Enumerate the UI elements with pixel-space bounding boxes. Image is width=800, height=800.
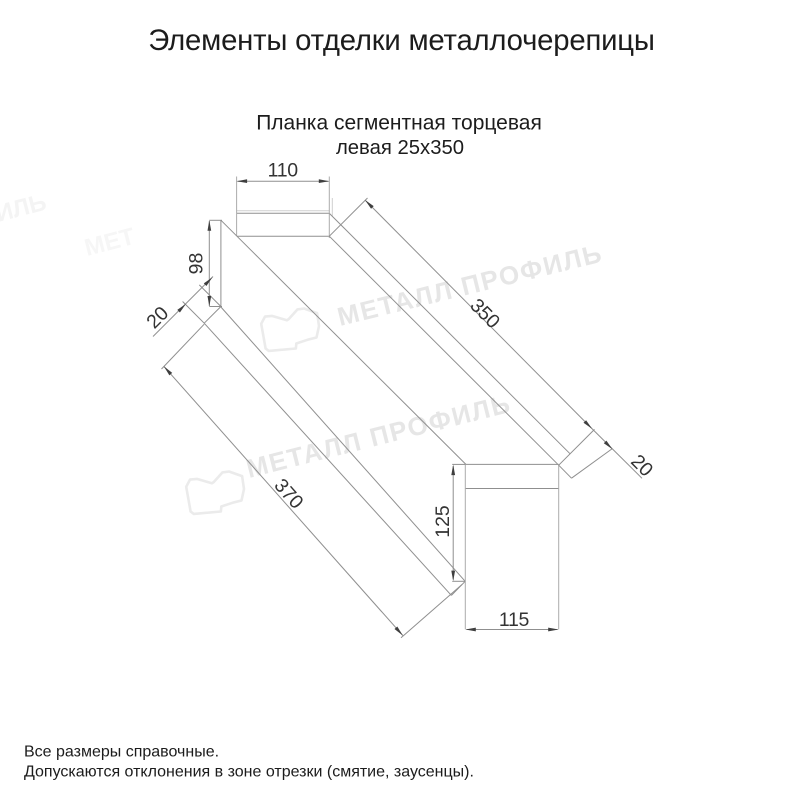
svg-text:Планка сегментная торцевая: Планка сегментная торцевая: [256, 112, 542, 135]
svg-text:115: 115: [499, 609, 530, 631]
svg-text:110: 110: [268, 160, 299, 182]
svg-text:98: 98: [186, 253, 208, 275]
svg-text:Элементы отделки металлочерепи: Элементы отделки металлочерепицы: [148, 24, 654, 57]
svg-text:Все размеры справочные.: Все размеры справочные.: [24, 744, 219, 761]
svg-text:левая 25х350: левая 25х350: [336, 137, 464, 159]
svg-text:125: 125: [432, 505, 454, 538]
svg-text:Допускаются отклонения в зоне: Допускаются отклонения в зоне отрезки (с…: [24, 764, 474, 781]
